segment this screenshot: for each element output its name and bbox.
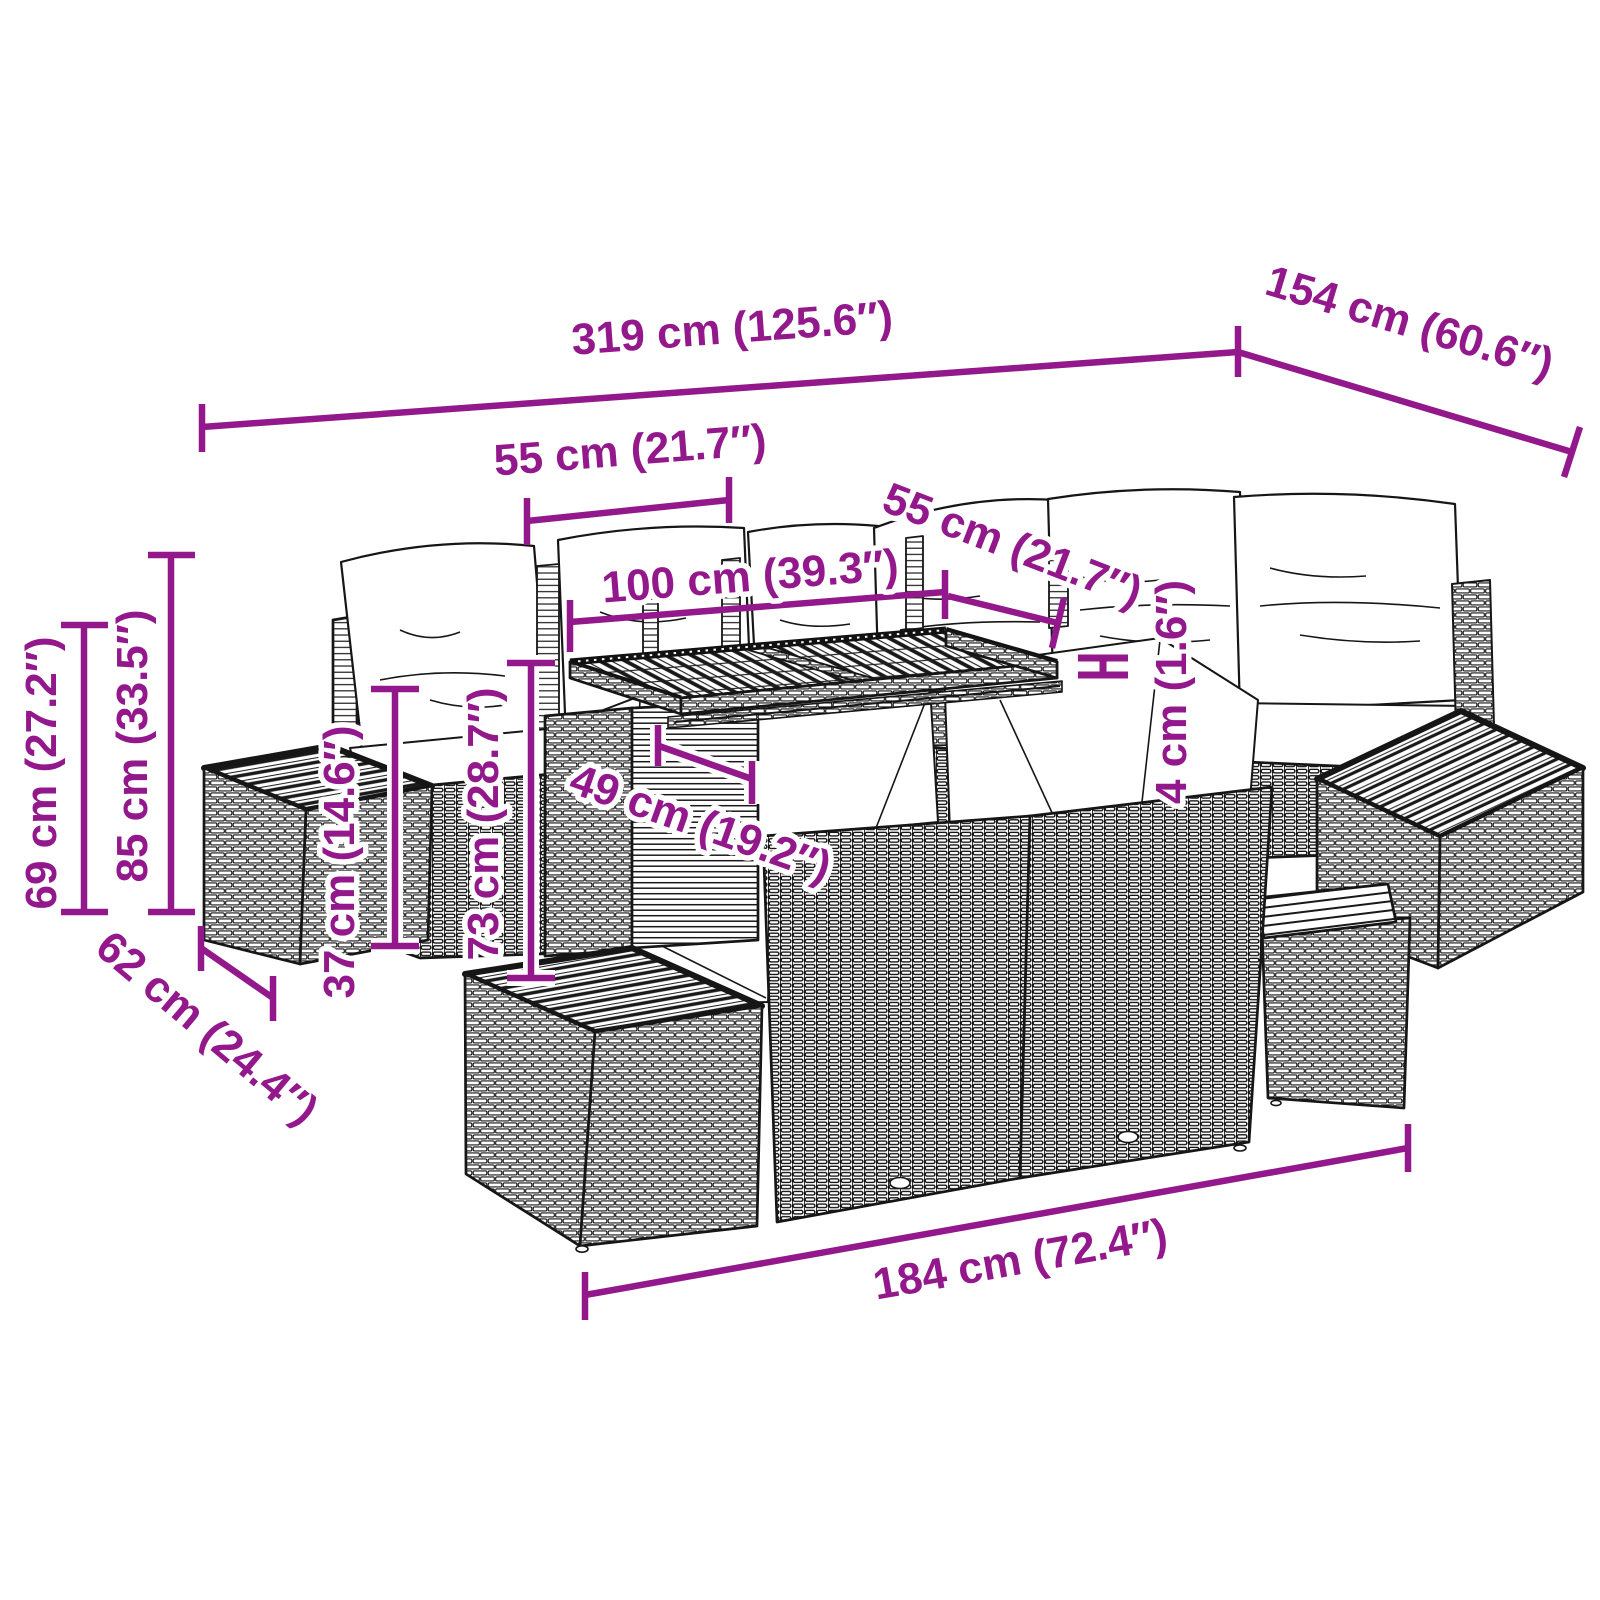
svg-text:85 cm (33.5″): 85 cm (33.5″)	[108, 609, 157, 882]
svg-text:4 cm (1.6″): 4 cm (1.6″)	[1147, 580, 1196, 804]
svg-text:73 cm (28.7″): 73 cm (28.7″)	[459, 687, 508, 960]
svg-text:37 cm (14.6″): 37 cm (14.6″)	[315, 725, 364, 998]
svg-text:69 cm (27.2″): 69 cm (27.2″)	[17, 636, 66, 909]
